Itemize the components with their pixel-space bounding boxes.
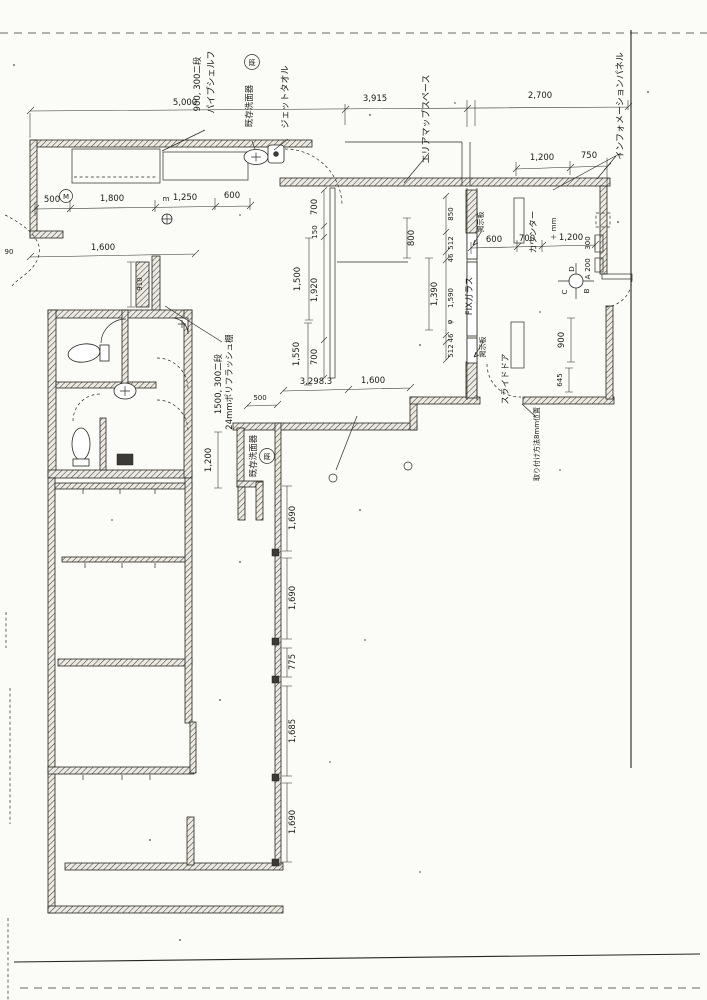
label-fix-glass: FIXガラス bbox=[464, 277, 475, 316]
door-arc-wc2 bbox=[157, 400, 188, 431]
wing-wall-right-a bbox=[185, 478, 192, 723]
label-existing-basin-2: 既存洗面器 bbox=[248, 434, 259, 477]
label-area-map-space: エリアマップスペース bbox=[421, 75, 432, 164]
entry-door-leaf bbox=[602, 274, 632, 279]
dim-512-a: 512 bbox=[447, 236, 455, 249]
label-plus-mm: ＋ mm bbox=[550, 217, 558, 240]
dim-600-b: 600 bbox=[486, 235, 502, 245]
floor-fixture bbox=[117, 454, 133, 465]
dim-1250: 1,250 bbox=[173, 193, 197, 203]
elevation-b: B bbox=[583, 288, 591, 293]
toilet-2 bbox=[72, 428, 90, 466]
dim-775: 775 bbox=[288, 654, 298, 670]
label-poly-shelf: 24mmポリフラッシュ棚 bbox=[224, 334, 235, 429]
walls bbox=[30, 140, 614, 913]
dim-850: 850 bbox=[447, 207, 455, 220]
elevation-c: C bbox=[561, 289, 569, 294]
stub-wall-2 bbox=[256, 482, 263, 520]
label-counter: カウンター bbox=[529, 211, 539, 254]
toilet-partition-v bbox=[122, 310, 128, 388]
dim-3298: 3,298.3 bbox=[300, 377, 332, 387]
dim-1920: 1,920 bbox=[310, 278, 320, 302]
small-m-mark: m bbox=[163, 195, 170, 203]
dim-600-a: 600 bbox=[224, 191, 240, 201]
toilet-wall-top bbox=[48, 310, 192, 318]
stub-wall-1 bbox=[238, 487, 245, 520]
pipe-shelf-counter bbox=[72, 149, 160, 183]
jet-towel-unit bbox=[268, 145, 284, 163]
wall-corridor bbox=[152, 256, 160, 312]
label-jet-towel: ジェットタオル bbox=[280, 65, 291, 128]
wing-wall-right-c bbox=[187, 817, 194, 865]
dim-1685: 1,685 bbox=[288, 719, 298, 743]
door-arc-entry bbox=[604, 279, 632, 307]
dim-1200-counter: 1,200 bbox=[559, 233, 583, 243]
door-arc-washroom bbox=[285, 149, 342, 206]
dim-200: 200 bbox=[584, 258, 592, 271]
wing-partition-5 bbox=[65, 863, 283, 870]
hall-wall-right-upper bbox=[600, 186, 607, 274]
toilet-partition-h bbox=[56, 382, 156, 388]
dim-1590: 1,590 bbox=[447, 288, 455, 308]
column-circle-1 bbox=[329, 474, 337, 482]
wall-mid-horizontal bbox=[233, 423, 417, 430]
basinroom-wall-left bbox=[237, 428, 244, 487]
dimension-lines bbox=[27, 100, 632, 862]
glass-pane-1 bbox=[467, 233, 477, 259]
dim-1390: 1,390 bbox=[430, 282, 440, 306]
toilet-partition-v2 bbox=[100, 418, 106, 470]
toilet-wall-left bbox=[48, 310, 56, 478]
dim-90: 90 bbox=[5, 248, 14, 256]
dim-1200-room: 1,200 bbox=[204, 448, 214, 472]
dim-1550: 1,550 bbox=[292, 342, 302, 366]
dim-700-v1: 700 bbox=[310, 199, 320, 215]
label-mounting-note: 取り付け方法8mm位置 bbox=[532, 407, 541, 481]
dim-1600-b: 1,600 bbox=[361, 376, 385, 386]
dim-512-b: 512 bbox=[447, 344, 455, 357]
dim-1600-a: 1,600 bbox=[91, 243, 115, 253]
label-poly-shelf-size: 1500, 300二段 bbox=[213, 353, 224, 414]
wing-wall-right-b bbox=[190, 722, 196, 773]
drain-mark bbox=[162, 214, 172, 224]
elevation-d: D bbox=[568, 266, 576, 271]
wall-second-top bbox=[280, 178, 610, 186]
floor-plan-drawing: 5,000 3,915 2,700 1,200 750 500 1,800 1,… bbox=[0, 0, 707, 1000]
dim-46-b: 46 bbox=[447, 333, 455, 342]
toilet-1 bbox=[67, 342, 109, 364]
hall-wall-bottom-right bbox=[523, 397, 614, 404]
dim-150: 150 bbox=[311, 225, 319, 238]
dim-500-b: 500 bbox=[253, 394, 266, 402]
label-pipe-shelf: パイプシェルフ bbox=[206, 50, 217, 113]
door-stop-ticks bbox=[83, 489, 155, 780]
label-information-panel: インフォメーションパネル bbox=[615, 52, 626, 160]
wing-partition-3 bbox=[58, 659, 192, 666]
dim-910: 910 bbox=[136, 277, 144, 290]
dim-1690-b: 1,690 bbox=[288, 586, 298, 610]
dim-645: 645 bbox=[556, 373, 564, 386]
toilet-wall-bottom bbox=[48, 470, 192, 478]
glass-pane-3 bbox=[467, 338, 477, 363]
dim-300: 300 bbox=[584, 236, 592, 249]
label-pipe-shelf-size: 900, 300二段 bbox=[192, 56, 203, 111]
scanned-floor-plan-page: 5,000 3,915 2,700 1,200 750 500 1,800 1,… bbox=[0, 0, 707, 1000]
phi-mark: φ bbox=[446, 319, 454, 324]
dim-1800: 1,800 bbox=[100, 194, 124, 204]
slide-door-panel bbox=[511, 322, 524, 368]
counter-2 bbox=[163, 152, 248, 180]
hall-left-wall bbox=[330, 188, 335, 378]
dim-1690-a: 1,690 bbox=[288, 506, 298, 530]
dim-750: 750 bbox=[581, 151, 597, 161]
glass-wall-bottom-seg bbox=[466, 362, 477, 398]
toilet-wall-right bbox=[184, 310, 192, 478]
dim-1690-c: 1,690 bbox=[288, 810, 298, 834]
label-existing-basin-1: 既存洗面器 bbox=[244, 84, 255, 127]
existing-mark-1: 既 bbox=[249, 59, 256, 67]
door-arc-wc3 bbox=[73, 394, 100, 421]
dim-1500: 1,500 bbox=[293, 267, 303, 291]
existing-mark-2: 既 bbox=[264, 453, 271, 461]
wing-partition-1 bbox=[55, 483, 192, 489]
wall-left-stub bbox=[30, 231, 63, 238]
dim-900: 900 bbox=[557, 332, 567, 348]
wall-left-upper bbox=[30, 140, 37, 238]
wing-wall-bottom bbox=[48, 906, 283, 913]
dim-3915: 3,915 bbox=[363, 94, 387, 104]
label-slide-door: スライドドア bbox=[501, 353, 511, 404]
circled-m-text: M bbox=[63, 193, 69, 201]
column-circle-2 bbox=[404, 462, 412, 470]
wing-partition-2 bbox=[62, 557, 188, 562]
elevation-a: A bbox=[584, 274, 592, 279]
dim-46-a: 46 bbox=[447, 253, 455, 262]
label-bulletin-1: 掲示板 bbox=[476, 212, 485, 233]
scan-artifacts bbox=[0, 30, 707, 1000]
wing-partition-4 bbox=[48, 767, 194, 774]
door-arc-wc1 bbox=[157, 358, 188, 389]
dim-1200-top: 1,200 bbox=[530, 153, 554, 163]
glass-wall-top-seg bbox=[466, 190, 477, 233]
dim-500-a: 500 bbox=[44, 195, 60, 205]
wing-wall-left bbox=[48, 478, 55, 913]
washbasin-top bbox=[244, 150, 268, 165]
hand-basin-mid bbox=[114, 383, 136, 399]
dim-2700: 2,700 bbox=[528, 91, 552, 101]
dim-800: 800 bbox=[407, 230, 417, 246]
dimension-text: 5,000 3,915 2,700 1,200 750 500 1,800 1,… bbox=[5, 91, 598, 834]
hall-wall-right-lower bbox=[606, 306, 613, 399]
label-bulletin-2: 掲示板 bbox=[478, 337, 487, 358]
dim-700-v2: 700 bbox=[310, 349, 320, 365]
